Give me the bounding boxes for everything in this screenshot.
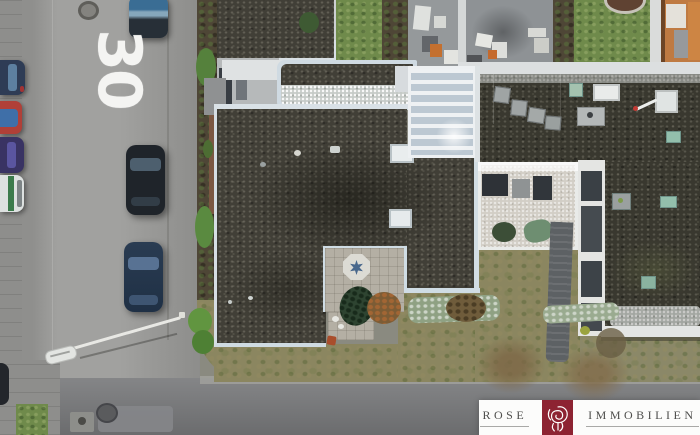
bare-shrub-3 <box>596 328 626 358</box>
building-c-roof <box>217 0 338 62</box>
parked-car-navy-glass <box>8 64 17 91</box>
parapet-a-top <box>214 104 410 109</box>
roof-speck-2 <box>228 300 232 304</box>
manhole-bottom <box>96 403 118 423</box>
verge-bush-3 <box>203 140 213 158</box>
skylight-b-1 <box>493 86 511 104</box>
skylight-b-5-moss <box>618 198 623 203</box>
garden-path <box>546 222 574 363</box>
parapet-b-top <box>458 62 700 74</box>
orange-house-edge <box>661 0 665 62</box>
parked-car-green-stripe <box>8 176 14 211</box>
terrace-orange-object <box>430 44 442 57</box>
hedge-strip-right <box>553 0 575 63</box>
skylight-teal-2 <box>666 131 681 143</box>
lawn-top-left <box>336 0 386 66</box>
atrium-wall-stub <box>395 66 408 92</box>
b-facade-window-2 <box>581 206 602 252</box>
roof-hatch-white-2 <box>655 90 678 113</box>
patio-white-table <box>534 38 549 53</box>
parked-car-red-tarp <box>0 109 18 127</box>
brown-shrub <box>446 294 486 322</box>
atrium-frost-patch <box>436 118 472 154</box>
garden-pot-2 <box>338 324 344 329</box>
courtyard-window-2 <box>533 176 552 200</box>
frost-wing-gravel <box>281 64 413 85</box>
parked-car-purple-glass <box>7 142 16 168</box>
roof-vent-3 <box>260 162 266 167</box>
frost-wing-snow <box>281 85 413 106</box>
patio-white-lounger <box>528 28 546 37</box>
street-car-bottom-windshield <box>128 257 159 270</box>
orange-shrub <box>367 292 401 324</box>
courtyard-plants-1 <box>492 222 516 242</box>
utility-pad-cover <box>78 417 86 425</box>
b-roof-moss <box>610 240 700 300</box>
b-roof-frost-edge <box>478 74 700 83</box>
grass-strip-corner <box>16 404 48 435</box>
street-car-bottom-rear-glass <box>129 295 158 305</box>
ac-unit-fan <box>587 112 593 118</box>
realtor-logo-band: ROSE IMMOBILIEN <box>479 400 700 435</box>
skylight-b-2 <box>510 99 528 117</box>
patio-chair-1 <box>475 33 493 49</box>
orange-house-roof <box>688 2 700 60</box>
skylight-teal-3 <box>660 196 677 208</box>
courtyard-mat <box>512 179 530 198</box>
shrub-top <box>299 12 319 33</box>
courtyard-frost-top <box>478 162 578 171</box>
parked-car-sliver <box>0 363 9 405</box>
street-car-middle-windshield <box>130 158 161 171</box>
speed-30-road-marking: 30 <box>93 26 145 112</box>
roof-speck-1 <box>248 296 253 300</box>
bare-tree-1 <box>476 336 546 394</box>
terrace-box <box>434 16 446 28</box>
skylight-a-2 <box>389 209 412 228</box>
aerial-photo: 30 ROSE IMMOBILIEN <box>0 0 700 435</box>
hedge-clump <box>382 0 410 68</box>
verge-bush-2 <box>195 206 214 248</box>
parapet-b-left <box>475 66 480 162</box>
corner-bush-2 <box>192 330 214 354</box>
skylight-b-3 <box>527 107 546 124</box>
rose-flower-icon <box>542 400 573 435</box>
skylight-teal-4 <box>641 276 656 289</box>
b-facade-window-3 <box>581 261 602 297</box>
garden-pot-1 <box>332 316 339 322</box>
orange-house-awning <box>666 4 686 28</box>
skylight-b-4 <box>544 115 561 130</box>
antenna-red-tip <box>633 106 638 111</box>
street-car-middle-rear-glass <box>131 197 160 206</box>
manhole-top <box>78 1 99 20</box>
b-facade-window-1 <box>581 171 602 201</box>
walkway-white <box>222 60 280 80</box>
lamp-base <box>179 312 185 318</box>
roof-stain-1 <box>250 140 450 260</box>
roof-hatch-white-1 <box>593 84 620 101</box>
parapet-a-se <box>402 288 480 293</box>
b-roof-frost-bottom <box>610 306 700 326</box>
rose-flower-glyph <box>546 404 570 432</box>
parked-car-white-window <box>17 180 22 207</box>
patio-orange-box <box>488 50 497 59</box>
terrace-bench <box>413 5 431 31</box>
b-facade-plant <box>580 326 590 335</box>
red-pot <box>326 335 336 345</box>
road-joint-line <box>167 0 169 340</box>
logo-word-rose: ROSE <box>480 408 529 427</box>
speed-30-text: 30 <box>89 29 149 109</box>
skylight-teal-1 <box>569 83 583 97</box>
logo-word-immobilien: IMMOBILIEN <box>586 408 698 427</box>
roof-vent-1 <box>294 150 301 156</box>
parked-car-navy-light <box>20 86 24 92</box>
roof-vent-2 <box>330 146 340 153</box>
courtyard-window-1 <box>482 174 508 196</box>
road-joint-line-2 <box>52 0 53 360</box>
